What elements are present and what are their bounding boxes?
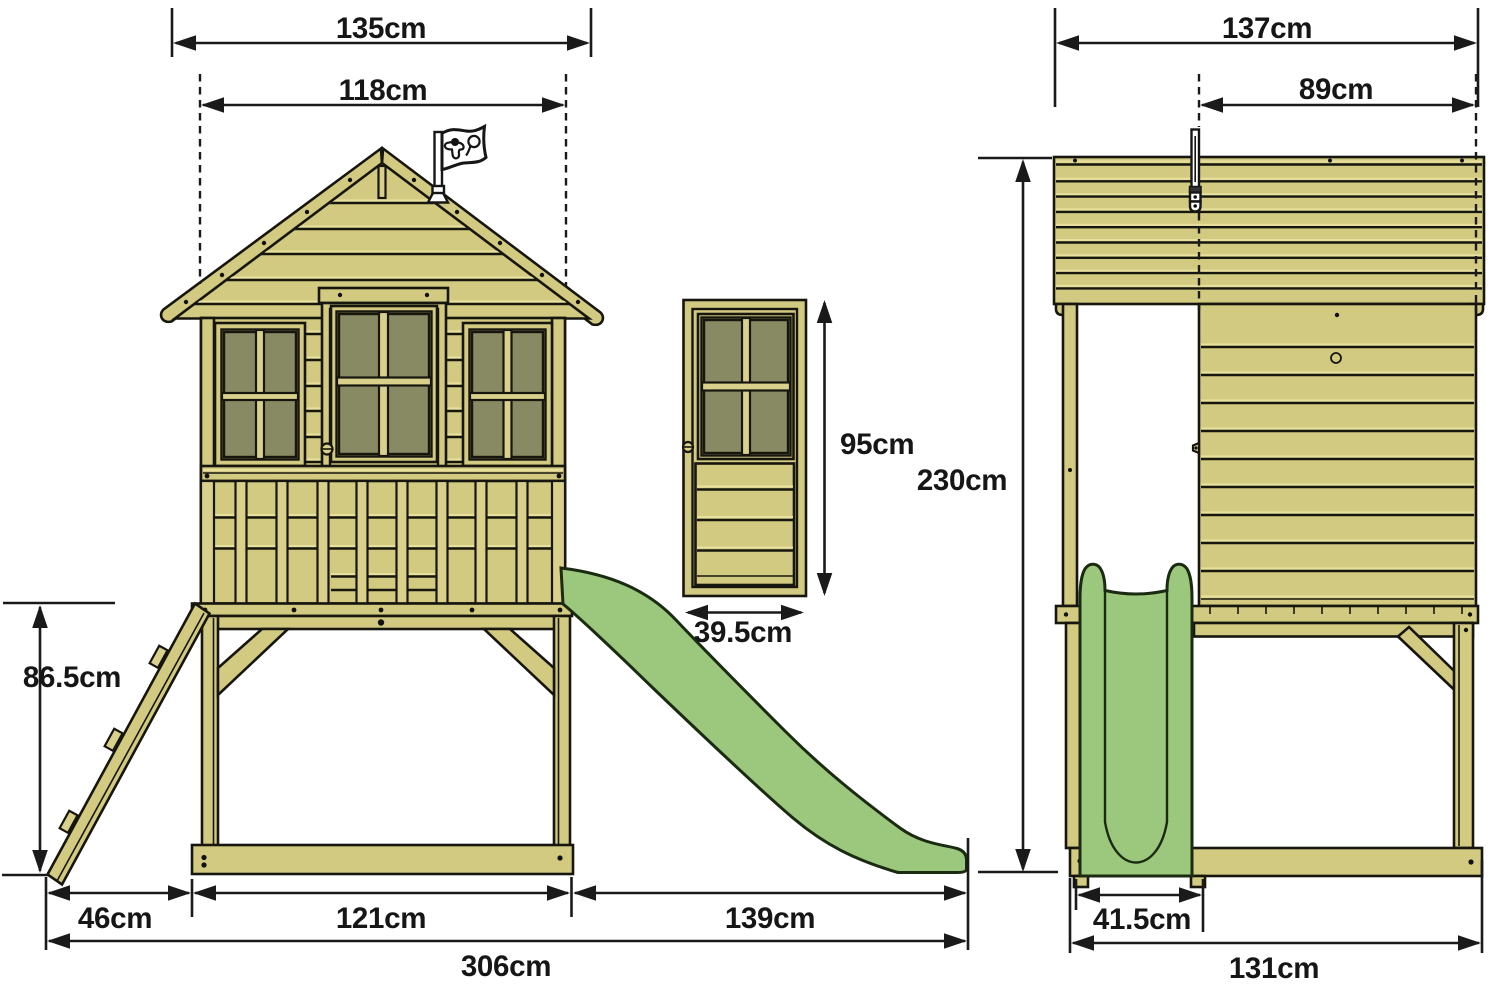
svg-text:131cm: 131cm bbox=[1229, 952, 1319, 985]
svg-text:137cm: 137cm bbox=[1222, 12, 1312, 45]
svg-text:121cm: 121cm bbox=[336, 902, 426, 935]
svg-text:46cm: 46cm bbox=[78, 902, 152, 935]
svg-text:95cm: 95cm bbox=[840, 428, 914, 461]
svg-text:89cm: 89cm bbox=[1299, 73, 1373, 106]
svg-text:135cm: 135cm bbox=[336, 12, 426, 45]
svg-text:86.5cm: 86.5cm bbox=[23, 661, 121, 694]
svg-text:306cm: 306cm bbox=[461, 950, 551, 983]
svg-text:118cm: 118cm bbox=[339, 74, 428, 107]
svg-text:41.5cm: 41.5cm bbox=[1093, 903, 1191, 936]
svg-text:230cm: 230cm bbox=[917, 464, 1007, 497]
svg-text:39.5cm: 39.5cm bbox=[694, 616, 792, 649]
svg-text:139cm: 139cm bbox=[725, 902, 815, 935]
